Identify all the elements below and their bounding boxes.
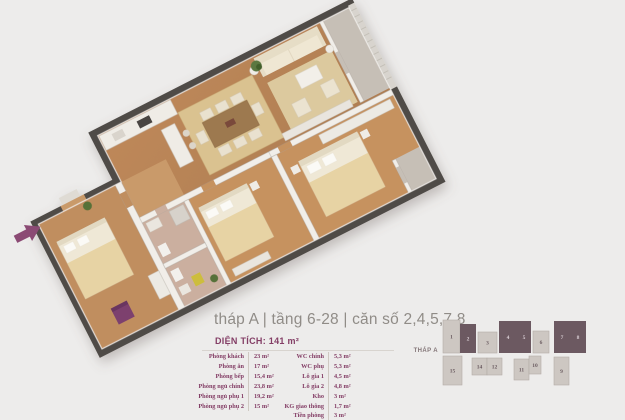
room-label: Lô gia 1 [276,372,329,382]
page: tháp A | tầng 6-28 | căn số 2,4,5,7,8 DI… [0,0,625,420]
entrance-arrow-icon [8,216,48,250]
key-plan-unit-number: 14 [477,365,483,371]
key-plan-unit-number: 2 [467,337,470,343]
room-label: Lô gia 2 [276,382,329,392]
room-row: Phòng ngủ phụ 215 m² [198,402,282,412]
room-label: Phòng ngủ phụ 1 [198,392,249,402]
key-plan-unit-number: 11 [519,368,524,374]
key-plan-units: 1234567815141211109 [443,320,586,385]
room-label: Tiền phòng [276,411,329,420]
key-plan-unit-number: 15 [450,369,456,375]
room-label: Phòng ngủ phụ 2 [198,402,249,412]
room-area-value: 3 m² [329,411,359,420]
room-row: WC phụ5,3 m² [276,362,358,372]
room-area-value: 4,8 m² [329,382,359,392]
room-row: Phòng ngủ phụ 119,2 m² [198,392,282,402]
room-area-value: 5,3 m² [329,362,359,372]
key-plan-unit-number: 10 [532,363,538,369]
room-label: Phòng ngủ chính [198,382,249,392]
key-plan-unit-number: 6 [540,340,543,346]
room-row: Phòng ăn17 m² [198,362,282,372]
plan-title: tháp A | tầng 6-28 | căn số 2,4,5,7,8 [214,311,466,329]
room-area-value: 3 m² [329,392,359,402]
key-plan-unit-number: 3 [486,341,489,347]
room-row: Lô gia 24,8 m² [276,382,358,392]
key-plan-unit-number: 1 [450,335,453,341]
room-table-right: WC chính5,3 m²WC phụ5,3 m²Lô gia 14,5 m²… [276,352,358,420]
key-plan-unit-number: 9 [560,369,563,375]
room-row: Lô gia 14,5 m² [276,372,358,382]
room-label: Kho [276,392,329,402]
room-row: WC chính5,3 m² [276,352,358,362]
room-label: KG giao thông [276,402,329,412]
key-plan-unit-number: 7 [561,335,564,341]
room-row: Tiền phòng3 m² [276,411,358,420]
room-area-value: 1,7 m² [329,402,359,412]
key-plan-unit-number: 4 [507,335,510,341]
room-label: Phòng ăn [198,362,249,372]
tower-label: THÁP A [400,348,438,354]
divider-line [202,350,394,351]
room-label: Phòng khách [198,352,249,362]
room-row: KG giao thông1,7 m² [276,402,358,412]
room-area-value: 5,3 m² [329,352,359,362]
room-area-value: 4,5 m² [329,372,359,382]
room-row: Phòng ngủ chính23,8 m² [198,382,282,392]
room-row: Phòng khách23 m² [198,352,282,362]
key-plan: 1234567815141211109 [441,315,589,387]
key-plan-unit-number: 5 [523,335,526,341]
room-row: Phòng bếp15,4 m² [198,372,282,382]
key-plan-unit-number: 12 [492,365,498,371]
room-row: Kho3 m² [276,392,358,402]
area-label: DIỆN TÍCH: 141 m² [215,336,299,346]
key-plan-unit-number: 8 [577,335,580,341]
room-table-left: Phòng khách23 m²Phòng ăn17 m²Phòng bếp15… [198,352,282,411]
room-label: Phòng bếp [198,372,249,382]
room-label: WC phụ [276,362,329,372]
room-label: WC chính [276,352,329,362]
